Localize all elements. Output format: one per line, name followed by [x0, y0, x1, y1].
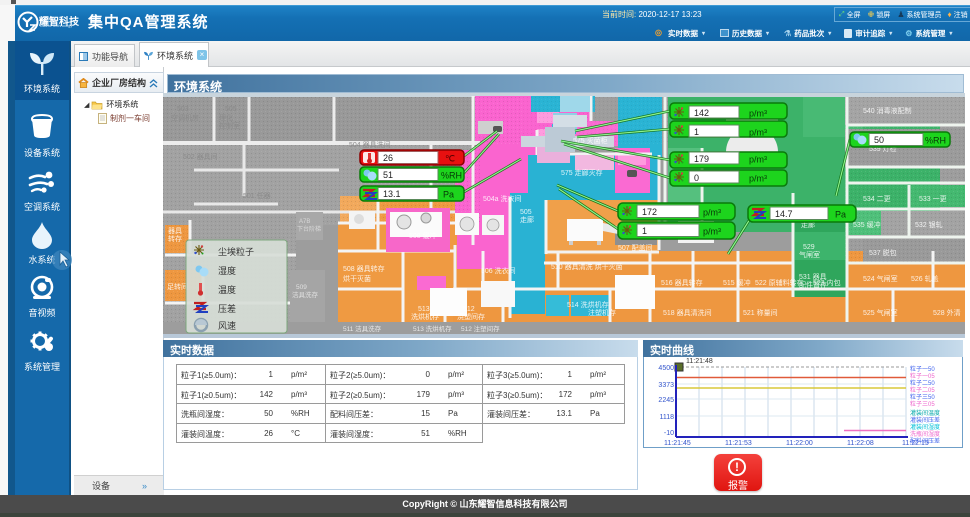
svg-text:513: 513 — [418, 306, 430, 313]
svg-text:515 缓冲: 515 缓冲 — [723, 278, 751, 287]
svg-text:湿度: 湿度 — [218, 265, 236, 276]
svg-text:粒子三05: 粒子三05 — [910, 400, 935, 408]
svg-text:512: 512 — [463, 306, 475, 313]
svg-text:26: 26 — [383, 153, 393, 163]
svg-text:洁具洗存: 洁具洗存 — [292, 290, 319, 299]
svg-text:p/m³: p/m³ — [749, 174, 767, 184]
svg-text:3373: 3373 — [658, 382, 674, 389]
svg-text:528 外清: 528 外清 — [933, 308, 961, 317]
svg-text:13.1: 13.1 — [383, 189, 401, 199]
svg-text:1118: 1118 — [659, 414, 674, 421]
svg-text:503: 503 — [177, 106, 189, 113]
svg-text:空调机房: 空调机房 — [171, 113, 199, 122]
svg-text:p/m³: p/m³ — [703, 208, 721, 218]
svg-text:p/m³: p/m³ — [749, 155, 767, 165]
svg-text:142: 142 — [694, 108, 709, 118]
svg-text:531 器具: 531 器具 — [799, 273, 827, 281]
svg-text:4500: 4500 — [658, 365, 674, 372]
svg-text:粒子二05: 粒子二05 — [910, 386, 935, 394]
svg-text:502 器具间: 502 器具间 — [183, 153, 218, 161]
svg-text:器具: 器具 — [168, 227, 182, 235]
svg-text:513 洗烘机存: 513 洗烘机存 — [413, 324, 452, 333]
svg-text:505: 505 — [520, 209, 532, 216]
svg-text:172: 172 — [642, 207, 657, 217]
svg-text:509: 509 — [296, 284, 307, 291]
svg-text:504 器具洗间: 504 器具洗间 — [349, 140, 391, 149]
svg-text:1: 1 — [642, 226, 647, 236]
svg-text:575 走廊灭存: 575 走廊灭存 — [561, 168, 603, 177]
svg-text:控制室: 控制室 — [219, 121, 240, 130]
svg-text:521 称量间: 521 称量间 — [743, 308, 778, 317]
svg-text:下台阶梯: 下台阶梯 — [297, 225, 321, 233]
svg-text:524 气闸室: 524 气闸室 — [863, 274, 898, 283]
svg-text:灌装间温度: 灌装间温度 — [910, 409, 940, 417]
svg-text:理化: 理化 — [219, 113, 233, 122]
svg-text:537 脱包: 537 脱包 — [869, 248, 897, 257]
svg-text:-10: -10 — [664, 430, 674, 437]
svg-text:514 洗烘机存: 514 洗烘机存 — [567, 300, 609, 309]
svg-text:温度: 温度 — [218, 284, 236, 295]
svg-text:p/m³: p/m³ — [703, 227, 721, 237]
svg-text:走廊: 走廊 — [520, 215, 534, 224]
svg-text:0: 0 — [694, 173, 699, 183]
svg-text:501 任器: 501 任器 — [243, 191, 271, 200]
svg-text:526 轧盖: 526 轧盖 — [911, 274, 939, 283]
svg-text:Pa: Pa — [835, 210, 846, 220]
svg-text:粒子一50: 粒子一50 — [910, 365, 935, 373]
svg-text:粒子一05: 粒子一05 — [910, 372, 935, 380]
svg-text:p/m³: p/m³ — [749, 109, 767, 119]
svg-text:512 注塑间存: 512 注塑间存 — [461, 324, 500, 333]
svg-text:11:22:00: 11:22:00 — [786, 440, 813, 447]
svg-text:粒子二50: 粒子二50 — [910, 379, 935, 387]
svg-text:灌装间湿度: 灌装间湿度 — [910, 423, 940, 431]
svg-text:A7B: A7B — [299, 219, 310, 225]
svg-text:11:21:48: 11:21:48 — [686, 358, 713, 365]
svg-text:50: 50 — [874, 135, 884, 145]
svg-text:507 配盖间: 507 配盖间 — [618, 243, 653, 252]
svg-text:Pa: Pa — [443, 190, 454, 200]
svg-text:压差: 压差 — [218, 303, 236, 314]
svg-text:533 一更: 533 一更 — [919, 195, 947, 203]
svg-text:534 二更: 534 二更 — [863, 195, 891, 203]
svg-text:179: 179 — [694, 154, 709, 164]
svg-text:气闸室: 气闸室 — [799, 250, 820, 259]
svg-text:540 消毒液配制: 540 消毒液配制 — [863, 106, 912, 115]
svg-text:11:21:45: 11:21:45 — [664, 440, 691, 447]
svg-text:505: 505 — [225, 106, 237, 113]
svg-text:511 洁具洗存: 511 洁具洗存 — [343, 324, 382, 333]
svg-text:浇塑间存: 浇塑间存 — [457, 312, 485, 321]
svg-text:粒子三50: 粒子三50 — [910, 393, 935, 401]
svg-text:灌装间压差: 灌装间压差 — [910, 416, 940, 424]
svg-text:506 洗衣间: 506 洗衣间 — [481, 266, 516, 275]
svg-text:532 银轧: 532 银轧 — [915, 220, 943, 229]
svg-text:529: 529 — [803, 244, 815, 251]
svg-text:配件暂存: 配件暂存 — [799, 280, 827, 289]
svg-text:510 器具清洗 烘干灭菌: 510 器具清洗 烘干灭菌 — [551, 262, 623, 271]
svg-text:518 器具清洗间: 518 器具清洗间 — [663, 308, 712, 317]
svg-text:℃: ℃ — [445, 154, 455, 164]
svg-text:508 器具转存: 508 器具转存 — [343, 264, 385, 273]
svg-text:535 缓冲: 535 缓冲 — [853, 220, 881, 229]
svg-text:516 器具转存: 516 器具转存 — [661, 278, 703, 287]
svg-text:注塑机存: 注塑机存 — [588, 308, 616, 317]
svg-text:洗烘机存: 洗烘机存 — [411, 312, 439, 321]
svg-text:11:21:53: 11:21:53 — [725, 440, 752, 447]
svg-text:508 缓冲: 508 缓冲 — [409, 231, 437, 240]
svg-text:%RH: %RH — [441, 171, 462, 181]
svg-text:p/m³: p/m³ — [749, 128, 767, 138]
svg-text:11:22:08: 11:22:08 — [847, 440, 874, 447]
svg-text:51: 51 — [383, 170, 393, 180]
svg-text:足转间: 足转间 — [167, 282, 188, 291]
svg-text:洗瓶间湿度: 洗瓶间湿度 — [910, 430, 940, 438]
svg-text:%RH: %RH — [925, 136, 946, 146]
svg-text:2245: 2245 — [658, 397, 674, 404]
svg-text:转存: 转存 — [168, 234, 182, 243]
svg-text:烘干灭菌: 烘干灭菌 — [343, 274, 371, 283]
svg-text:尘埃粒子: 尘埃粒子 — [218, 246, 254, 257]
svg-text:14.7: 14.7 — [775, 209, 793, 219]
svg-text:风速: 风速 — [218, 321, 236, 331]
svg-text:525 气闸室: 525 气闸室 — [863, 308, 898, 317]
svg-text:1: 1 — [694, 127, 699, 137]
svg-text:配料间压差: 配料间压差 — [910, 437, 940, 445]
svg-text:522 原辅料转存: 522 原辅料转存 — [755, 278, 804, 287]
svg-text:504a 洗衣间: 504a 洗衣间 — [483, 194, 522, 203]
